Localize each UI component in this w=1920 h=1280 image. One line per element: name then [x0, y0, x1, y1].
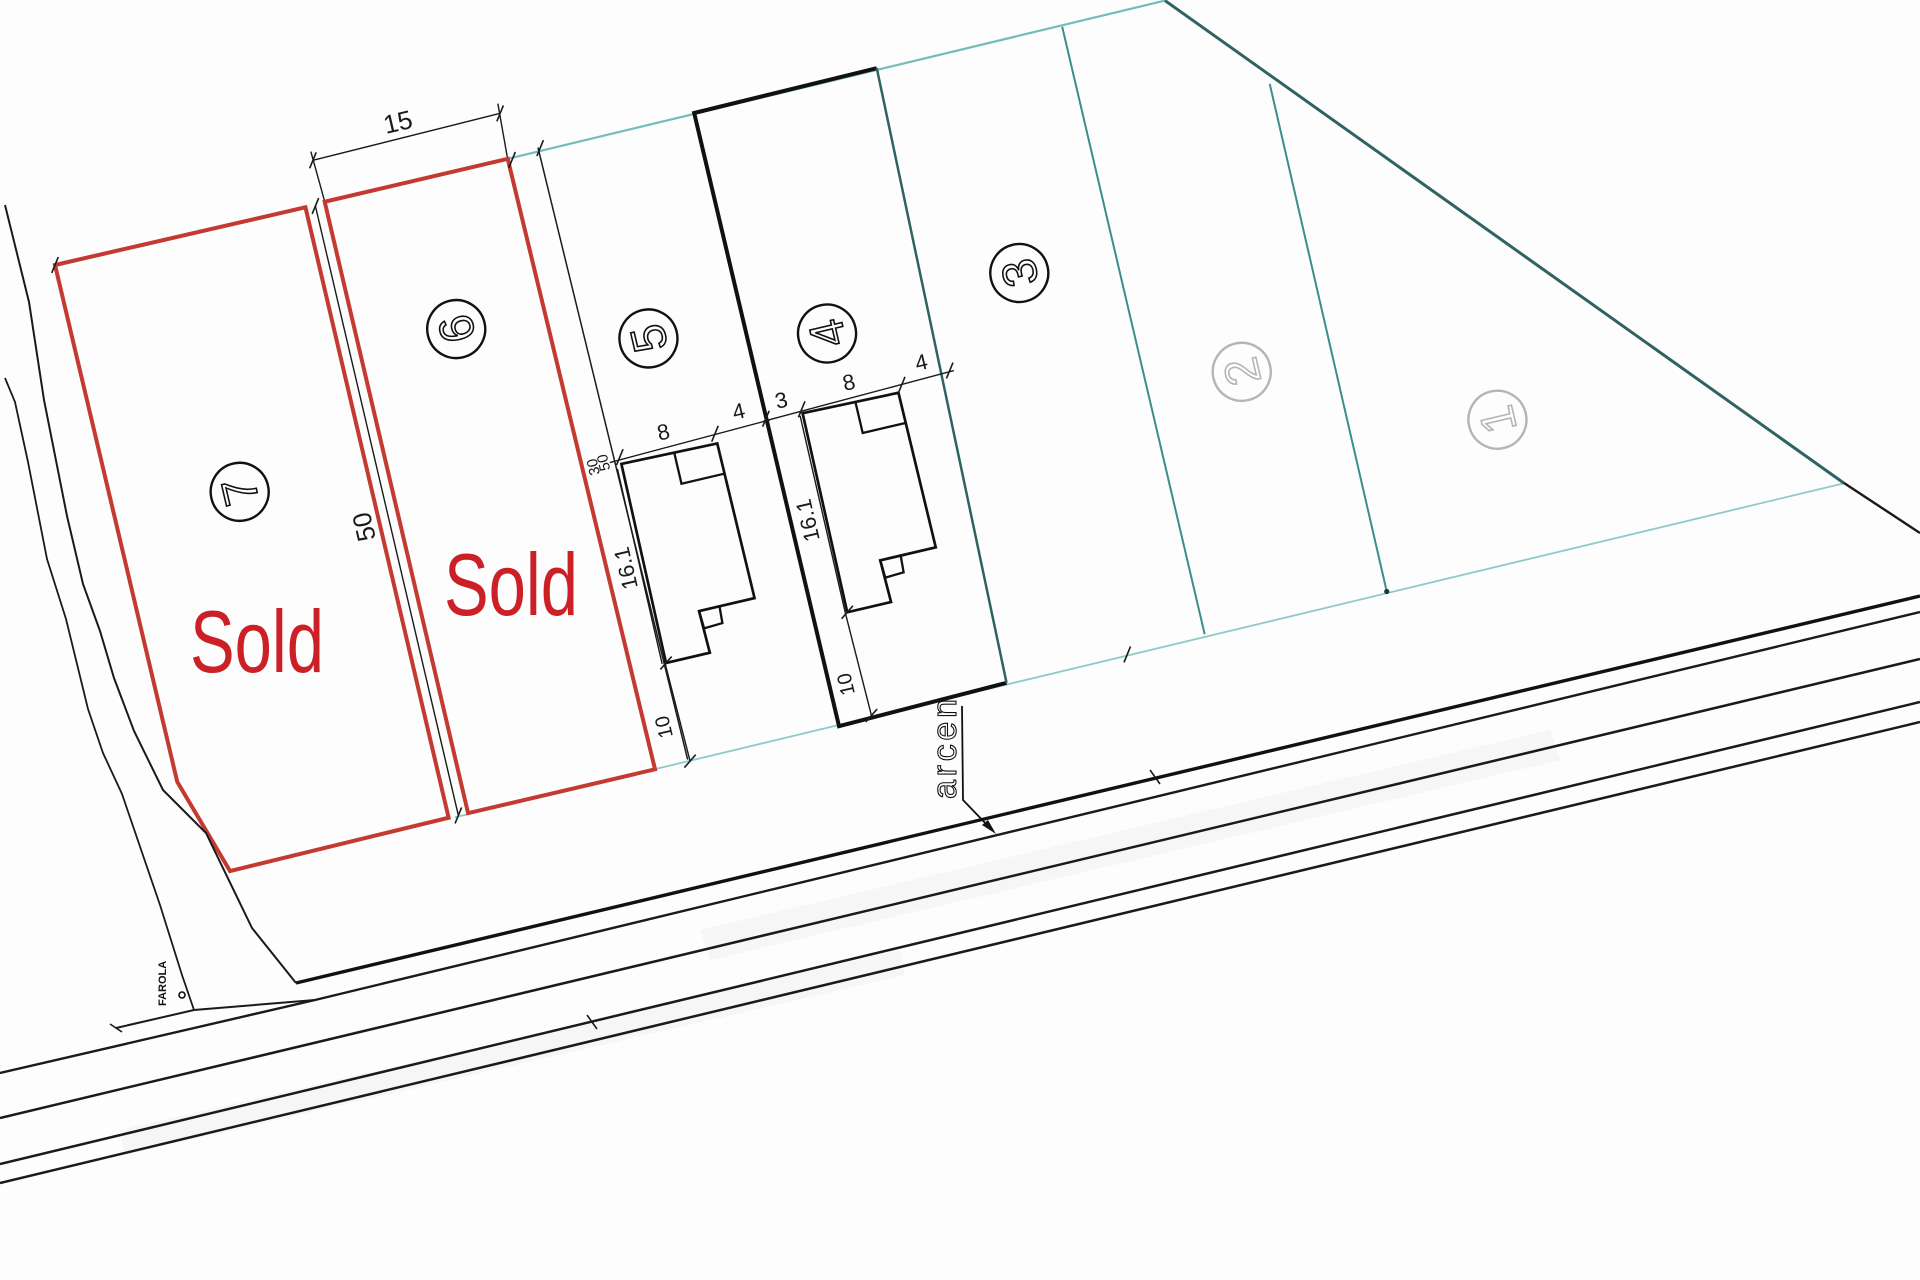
svg-text:FAROLA: FAROLA: [157, 961, 169, 1006]
svg-text:Sold: Sold: [190, 592, 324, 691]
svg-text:Sold: Sold: [444, 535, 578, 634]
svg-text:arcen: arcen: [926, 699, 964, 799]
